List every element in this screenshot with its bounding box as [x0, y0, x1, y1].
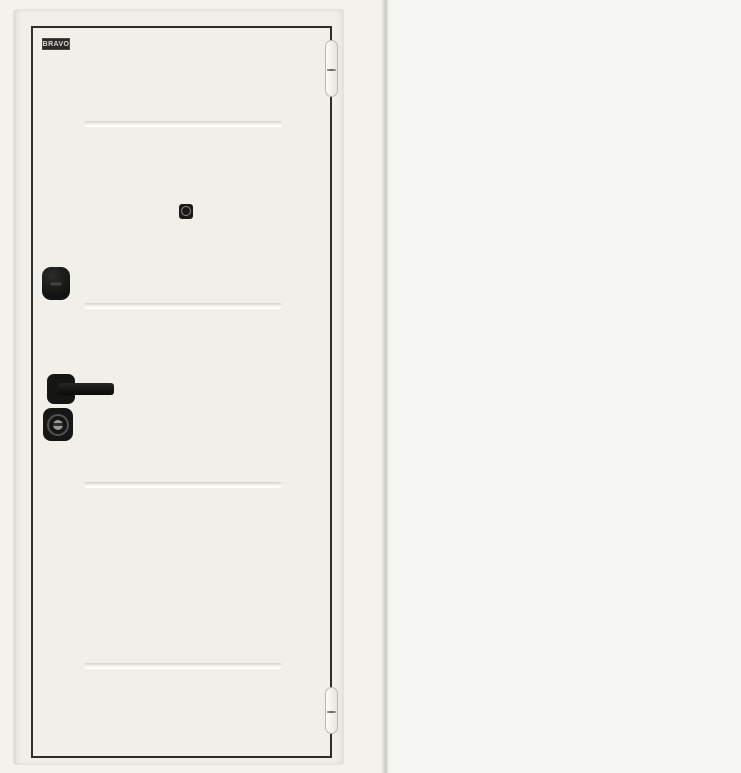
panel-groove	[84, 303, 282, 308]
lever-handle	[58, 383, 114, 395]
bottom-hinge	[325, 687, 338, 734]
peephole-icon	[179, 204, 193, 219]
front-door-photo: BRAVO	[0, 0, 383, 773]
panel-groove	[84, 663, 282, 668]
back-door-photo	[389, 0, 741, 773]
panel-groove	[84, 482, 282, 487]
door-product-image: BRAVO	[0, 0, 741, 773]
brand-logo: BRAVO	[42, 38, 70, 50]
thumbturn-escutcheon	[42, 267, 70, 300]
panel-groove	[84, 121, 282, 126]
top-hinge	[325, 40, 338, 97]
key-cylinder-escutcheon	[43, 408, 73, 441]
photo-divider	[381, 0, 389, 773]
